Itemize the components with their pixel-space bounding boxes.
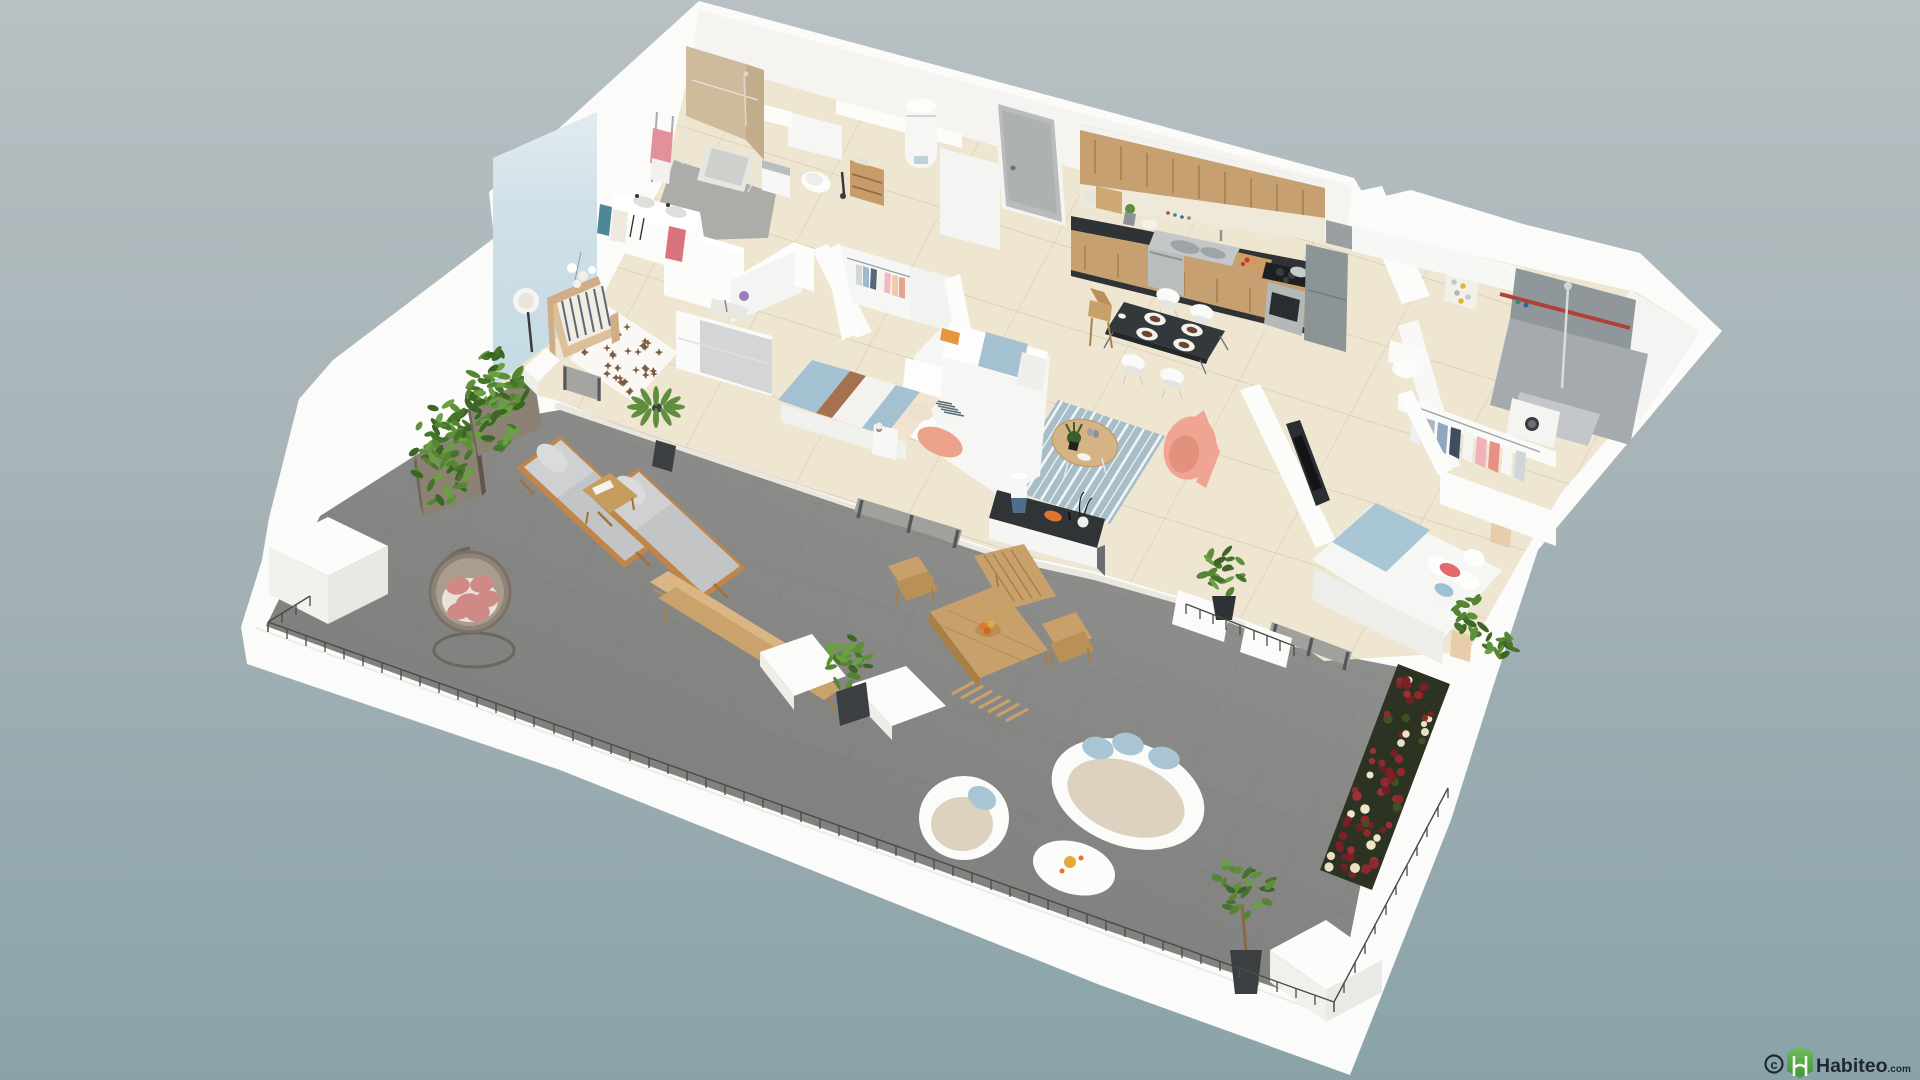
svg-text:c: c xyxy=(1770,1057,1777,1072)
